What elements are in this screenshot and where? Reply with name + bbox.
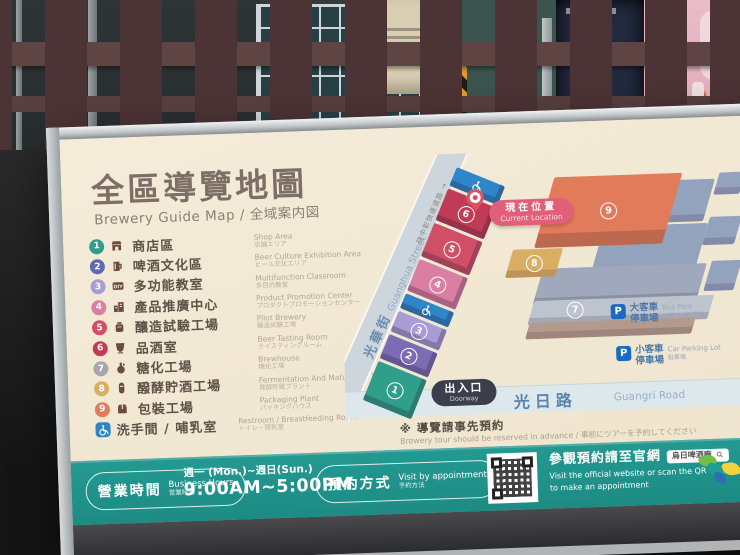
legend-label-ja: 店舗エリア [254, 240, 293, 249]
legend-label-ja: トイレ・授乳室 [239, 422, 358, 434]
legend-number-badge: 6 [92, 341, 108, 357]
brew-kettle-icon [114, 361, 132, 375]
sign-face: 全區導覽地圖 Brewery Guide Map / 全域案内図 1 商店區 S… [59, 115, 740, 461]
building-unlabeled [713, 172, 740, 195]
bus-park-zh2: 停車場 [630, 313, 659, 325]
doorway-en: Doorway [445, 395, 484, 404]
building-3-number: 3 [408, 320, 430, 342]
legend-number-badge: 8 [94, 381, 110, 397]
opening-hours: 週一 (Mon.)~週日(Sun.) 9:00AM~5:00PM [183, 463, 314, 503]
wheelchair-icon [95, 422, 111, 438]
campus-map: 光華街Guanghua Street 往中彰快速道路 → 7 [337, 143, 740, 421]
legend-number-badge: 4 [91, 300, 107, 316]
qr-code [487, 452, 539, 504]
car-park-en: Car Parking Lot [667, 344, 721, 354]
svg-text:DIY: DIY [113, 285, 123, 291]
ttl-logo [697, 454, 740, 488]
appointment-ja: 予約方法 [399, 480, 488, 491]
photo-of-brewery-map-sign: 全區導覽地圖 Brewery Guide Map / 全域案内図 1 商店區 S… [0, 0, 740, 555]
parking-icon: P [611, 304, 627, 320]
doorway-badge: 出入口 Doorway [431, 378, 497, 406]
fermentation-tank-icon [115, 382, 133, 396]
parking-icon: P [616, 346, 632, 362]
current-location-en: Current Location [500, 213, 563, 224]
building-4-number: 4 [426, 273, 448, 295]
store-icon [110, 239, 128, 253]
hours-zh: 營業時間 [97, 479, 162, 501]
legend-label-ja: テイスティングルーム [258, 341, 328, 351]
opening-time: 9:00AM~5:00PM [183, 476, 314, 502]
building-8-number: 8 [525, 254, 543, 272]
legend-label-zh: 洗手間 / 哺乳室 [116, 416, 239, 439]
legend-number-badge: 9 [95, 402, 111, 418]
brewery-guide-sign: 全區導覽地圖 Brewery Guide Map / 全域案内図 1 商店區 S… [46, 103, 740, 555]
building-unlabeled [702, 216, 740, 245]
diy-icon: DIY [111, 280, 129, 294]
package-box-icon [116, 402, 134, 416]
car-park-ja: 駐車場 [668, 353, 722, 363]
appointment-pill: 預約方式 Visit by appointment予約方法 [315, 459, 500, 503]
building-5-number: 5 [441, 238, 463, 260]
road-name-zh: 光日路 [513, 387, 577, 413]
legend-number-badge: 2 [90, 259, 106, 275]
legend-label-ja: 糖化工場 [258, 362, 300, 371]
car-parking-label: P 小客車停車場 Car Parking Lot駐車場 [616, 343, 721, 368]
car-park-zh2: 停車場 [635, 354, 664, 366]
website-zh: 參觀預約請至官網 [549, 449, 662, 470]
legend-number-badge: 3 [90, 279, 106, 295]
bus-park-ja: 大型バス駐車場 [662, 311, 704, 320]
brew-tank-icon [113, 320, 131, 334]
legend-label-ja: 醸造試験工場 [257, 321, 307, 331]
beer-mug-icon [111, 259, 129, 273]
legend-number-badge: 5 [92, 320, 108, 336]
legend-label-ja: パッキングハウス [260, 403, 320, 413]
bus-parking-label: P 大客車停車場 Bus Park大型バス駐車場 [611, 301, 705, 326]
building-1-number: 1 [384, 379, 406, 401]
legend-number-badge: 7 [93, 361, 109, 377]
building-9-number: 9 [599, 202, 617, 220]
tasting-cup-icon [113, 341, 131, 355]
building-2-number: 2 [398, 345, 420, 367]
appointment-zh: 預約方式 [327, 472, 392, 494]
map-legend: 1 商店區 Shop Area店舗エリア 2 啤酒文化區 Beer Cultur… [89, 228, 352, 441]
road-name-en: Guangri Road [614, 389, 686, 403]
current-location-badge: 現在位置 Current Location [489, 198, 574, 227]
legend-number-badge: 1 [89, 239, 105, 255]
bus-park-en: Bus Park [662, 303, 693, 312]
building-icon [112, 300, 130, 314]
building-unlabeled [703, 260, 740, 291]
building-8: 8 [505, 248, 563, 278]
